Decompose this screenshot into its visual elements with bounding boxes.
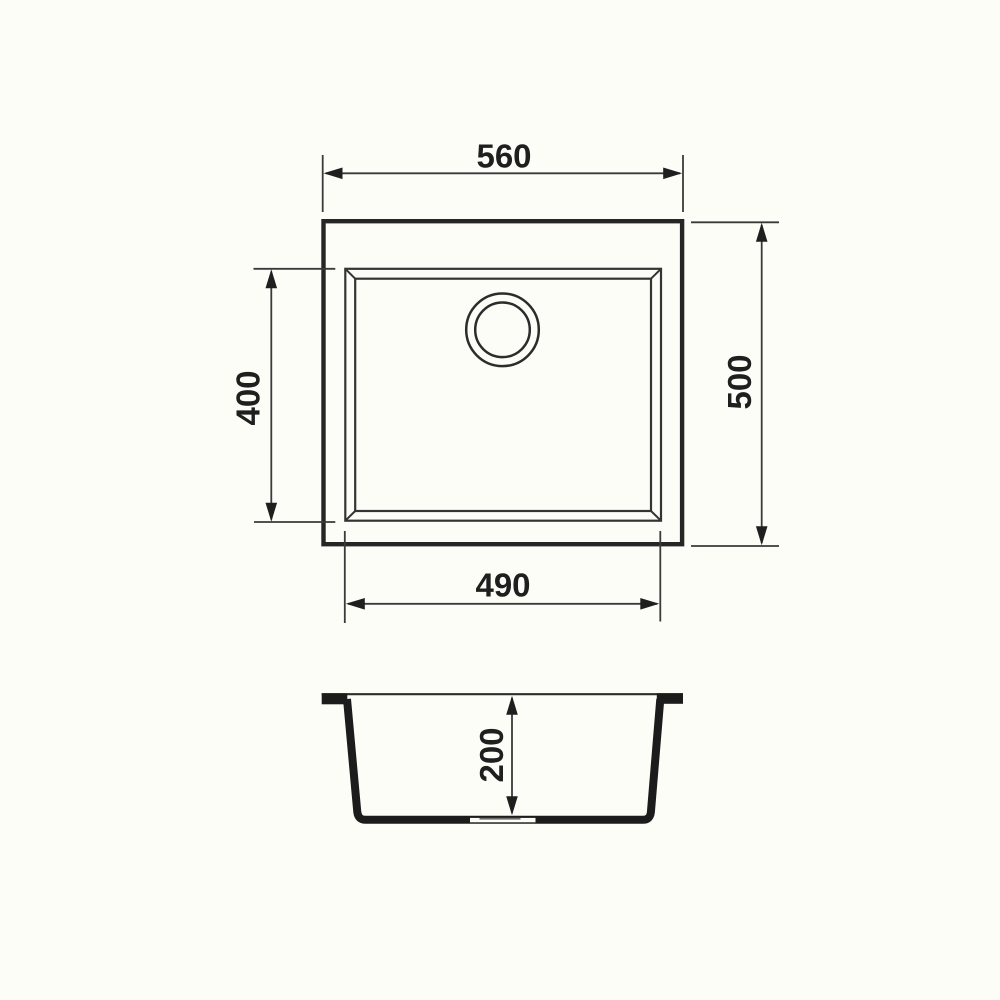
svg-text:500: 500: [721, 354, 758, 409]
svg-text:200: 200: [473, 727, 510, 782]
svg-text:490: 490: [475, 567, 530, 604]
svg-text:560: 560: [476, 138, 531, 175]
svg-text:400: 400: [230, 370, 267, 425]
